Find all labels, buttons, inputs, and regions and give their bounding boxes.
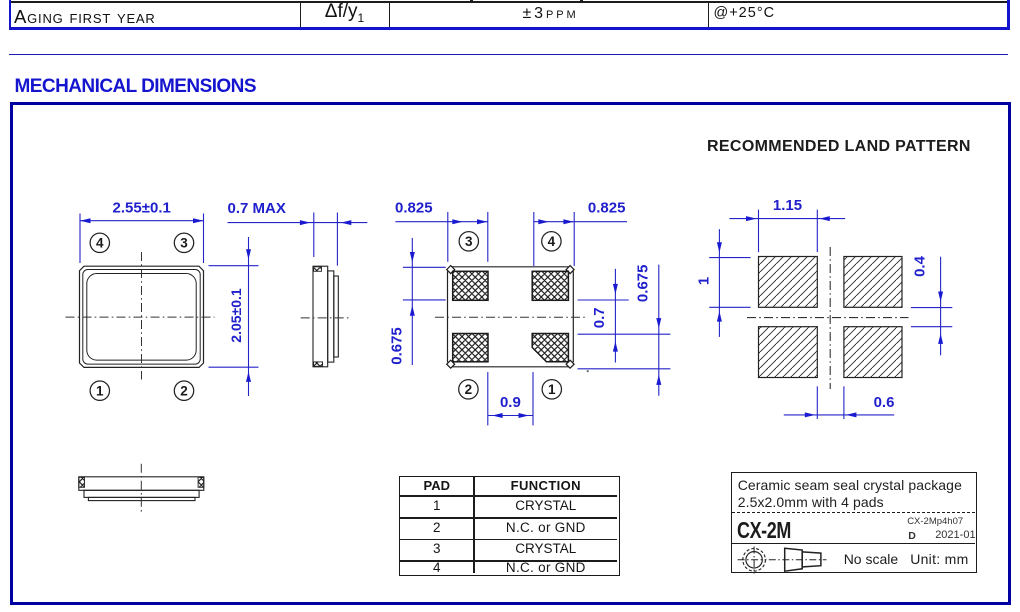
svg-text:2: 2 [180, 384, 188, 399]
svg-text:0.4: 0.4 [912, 255, 929, 277]
svg-text:0.675: 0.675 [635, 265, 652, 303]
svg-text:1.15: 1.15 [773, 197, 802, 214]
svg-text:0.7 MAX: 0.7 MAX [228, 200, 286, 217]
svg-text:0.675: 0.675 [389, 327, 406, 365]
svg-text:4: 4 [548, 234, 556, 249]
svg-text:0.825: 0.825 [588, 200, 626, 217]
svg-text:1: 1 [548, 382, 556, 397]
svg-text:2.55±0.1: 2.55±0.1 [113, 200, 171, 217]
svg-text:3: 3 [180, 236, 188, 251]
svg-text:0.7: 0.7 [591, 307, 608, 328]
svg-text:0.9: 0.9 [500, 394, 521, 411]
svg-text:0.6: 0.6 [874, 394, 895, 411]
svg-text:1: 1 [96, 384, 104, 399]
svg-text:4: 4 [96, 236, 104, 251]
svg-text:1: 1 [696, 277, 713, 285]
svg-text:2: 2 [465, 382, 473, 397]
svg-text:0.825: 0.825 [395, 200, 433, 217]
svg-text:2.05±0.1: 2.05±0.1 [228, 288, 244, 343]
svg-text:3: 3 [465, 234, 473, 249]
